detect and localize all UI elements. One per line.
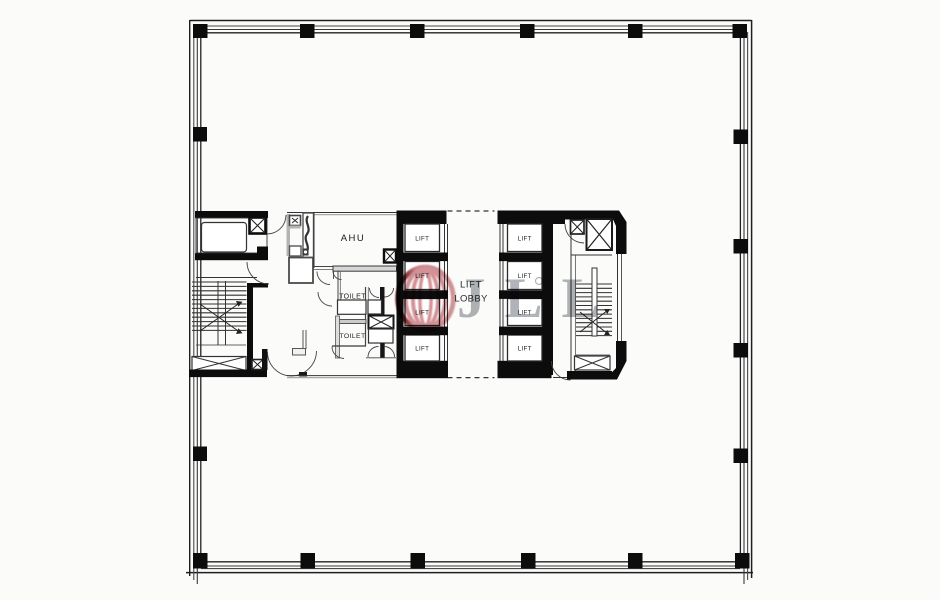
svg-text:LIFT: LIFT	[415, 235, 429, 242]
svg-text:LIFT: LIFT	[518, 235, 532, 242]
svg-text:AHU: AHU	[341, 233, 366, 244]
svg-text:LIFT: LIFT	[415, 346, 429, 353]
svg-text:JLL: JLL	[457, 267, 619, 330]
svg-text:TOILET: TOILET	[339, 333, 365, 340]
svg-text:LIFT: LIFT	[518, 346, 532, 353]
